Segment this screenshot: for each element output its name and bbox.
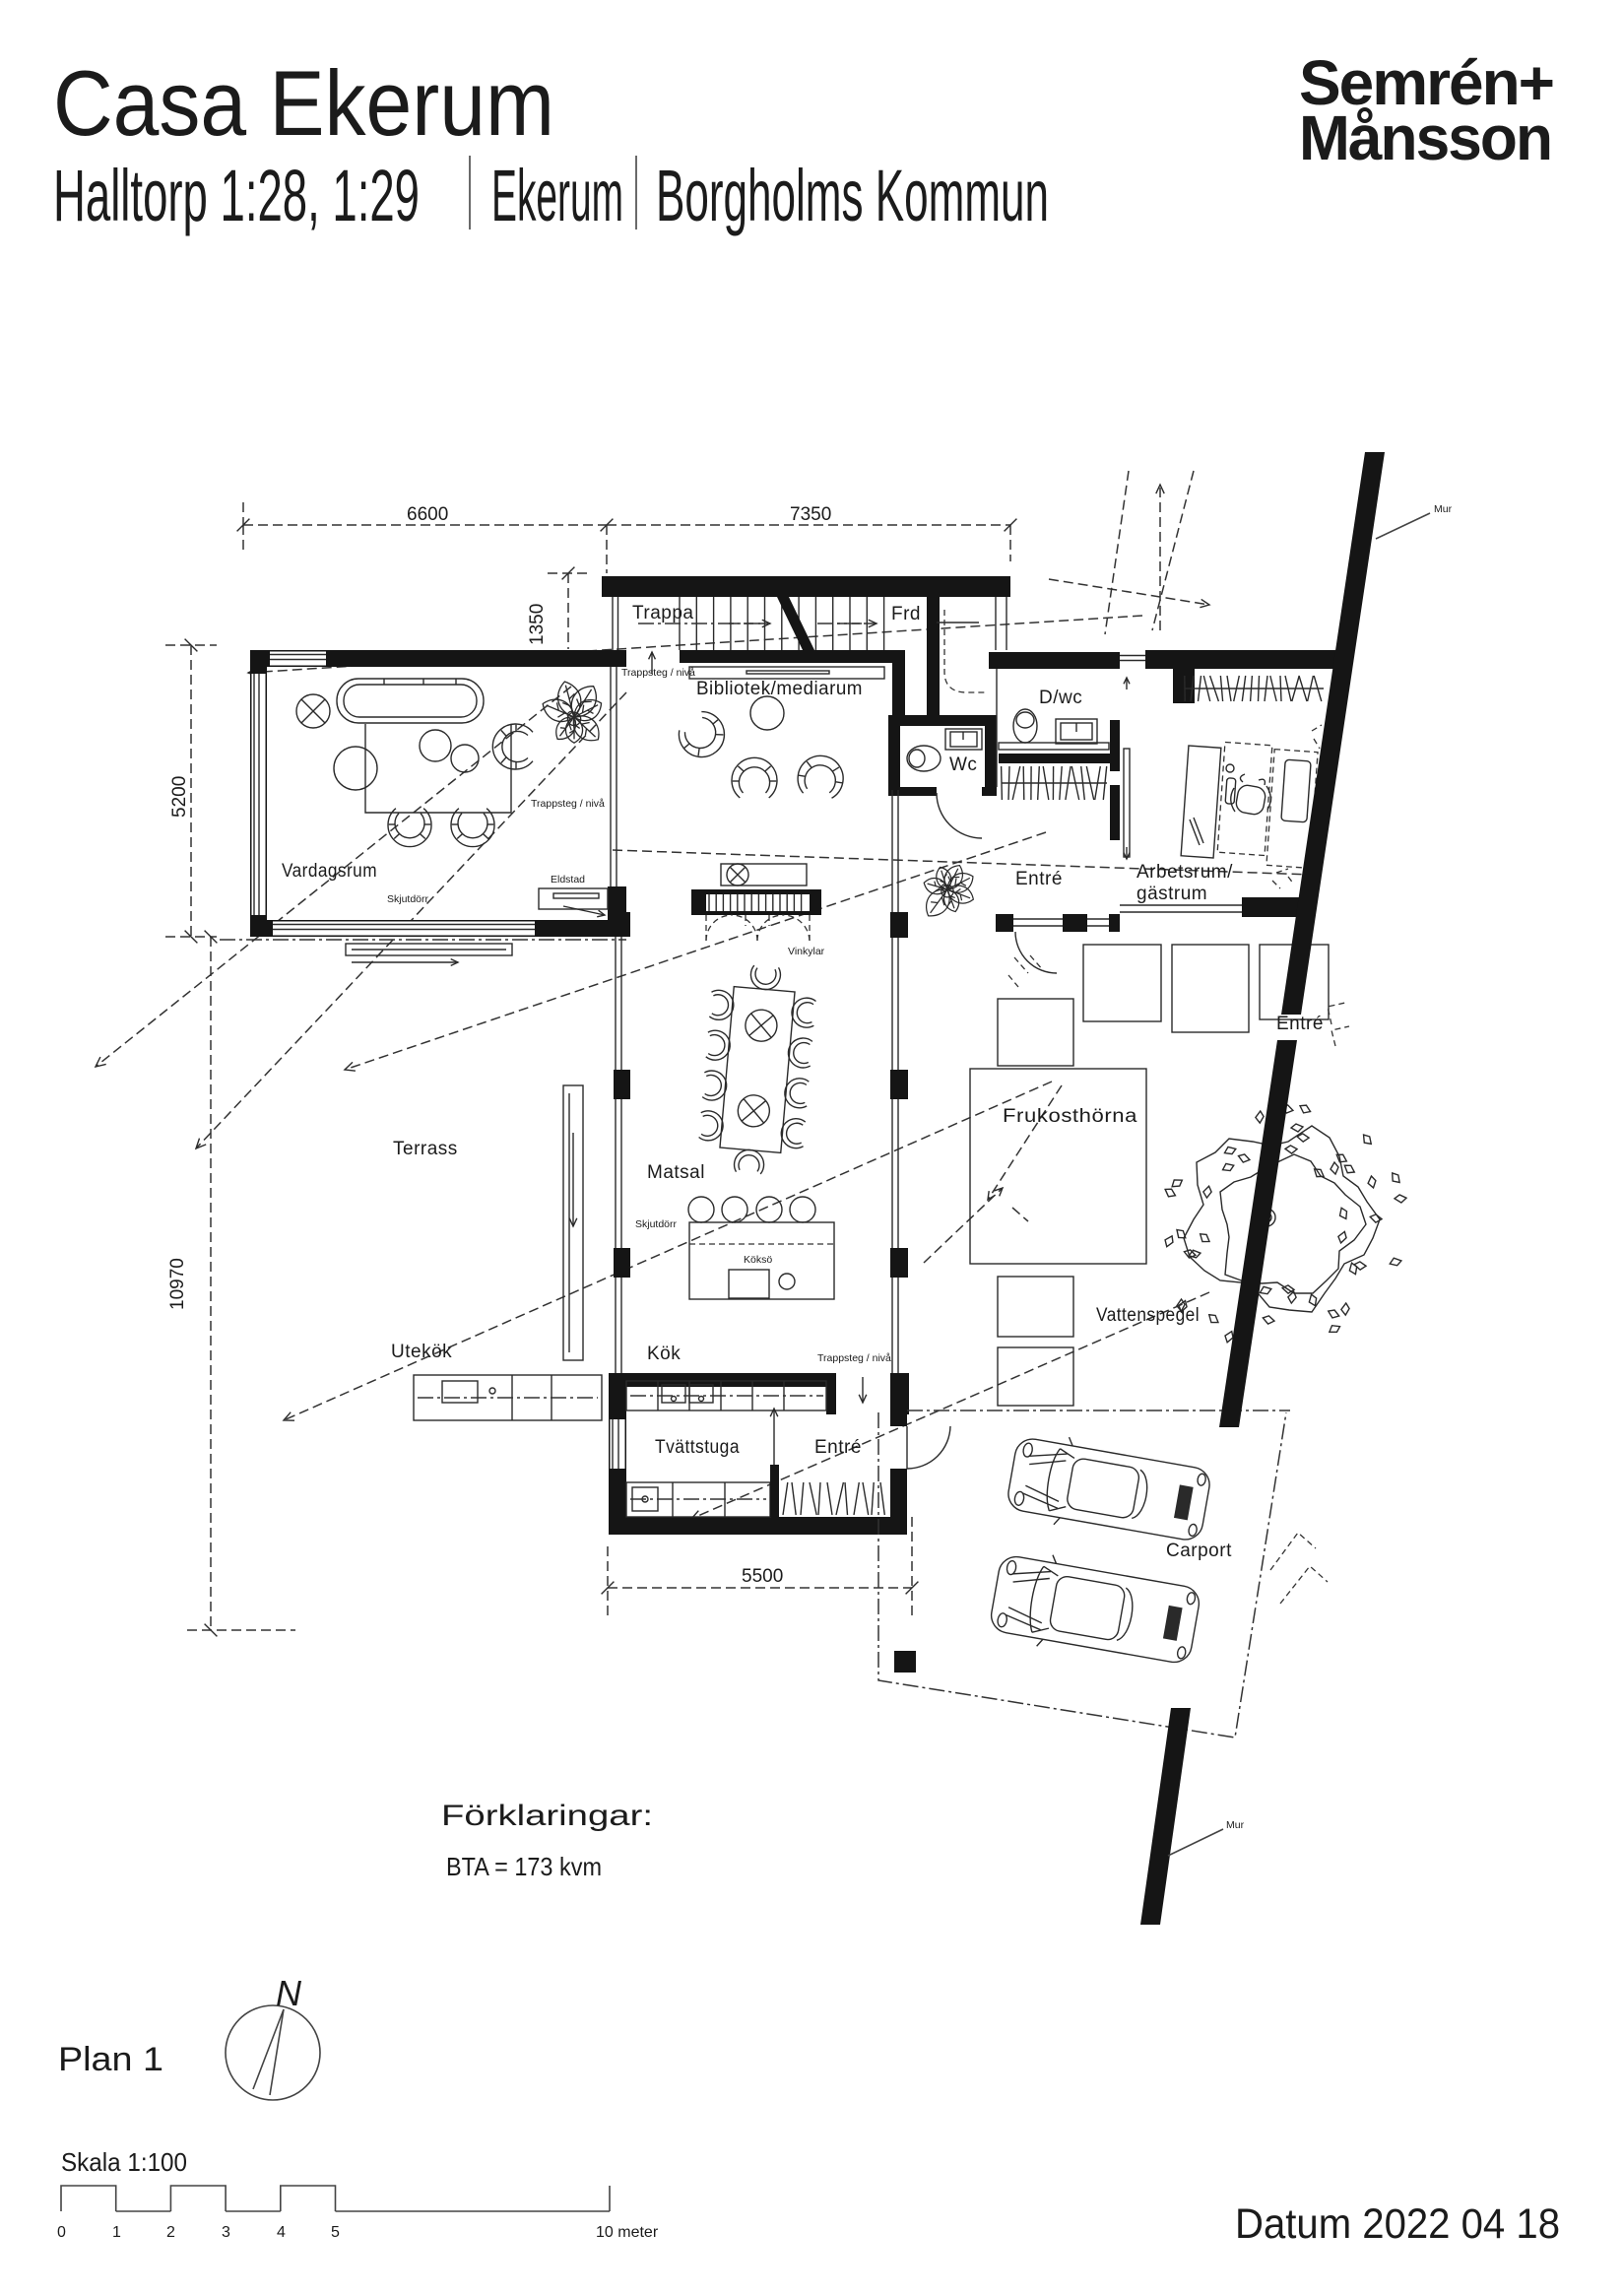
svg-text:Tvättstuga: Tvättstuga (655, 1437, 740, 1458)
svg-text:Datum 2022 04 18: Datum 2022 04 18 (1235, 2200, 1560, 2248)
svg-text:Eldstad: Eldstad (551, 874, 585, 886)
svg-text:5: 5 (331, 2224, 340, 2241)
svg-text:Kök: Kök (647, 1344, 681, 1364)
svg-text:D/wc: D/wc (1039, 688, 1082, 708)
svg-text:Entré: Entré (1015, 869, 1063, 889)
svg-text:7350: 7350 (790, 504, 831, 525)
svg-text:3: 3 (222, 2224, 230, 2241)
svg-text:Mur: Mur (1434, 503, 1453, 515)
svg-text:1: 1 (112, 2224, 121, 2241)
svg-text:Halltorp 1:28, 1:29: Halltorp 1:28, 1:29 (53, 155, 420, 236)
svg-text:1350: 1350 (527, 604, 548, 645)
svg-text:Skjutdörr: Skjutdörr (387, 893, 429, 905)
svg-text:Ekerum: Ekerum (491, 155, 623, 236)
svg-text:5500: 5500 (742, 1566, 783, 1587)
svg-text:Trappsteg / nivå: Trappsteg / nivå (817, 1352, 891, 1364)
svg-text:5200: 5200 (169, 776, 190, 818)
svg-text:Vardagsrum: Vardagsrum (282, 861, 377, 882)
svg-text:Casa Ekerum: Casa Ekerum (53, 51, 554, 155)
svg-text:Plan 1: Plan 1 (58, 2041, 163, 2078)
svg-text:10 meter: 10 meter (596, 2224, 659, 2241)
svg-text:Mur: Mur (1226, 1819, 1245, 1831)
svg-text:Entré: Entré (1276, 1014, 1324, 1034)
svg-text:Månsson: Månsson (1299, 102, 1551, 173)
svg-text:Utekök: Utekök (391, 1342, 452, 1362)
svg-text:Vinkylar: Vinkylar (788, 946, 825, 957)
svg-text:Borgholms Kommun: Borgholms Kommun (656, 155, 1049, 236)
svg-text:Skala 1:100: Skala 1:100 (61, 2147, 187, 2177)
svg-text:Bibliotek/mediarum: Bibliotek/mediarum (696, 679, 863, 699)
svg-text:Frukosthörna: Frukosthörna (1003, 1106, 1137, 1127)
svg-text:0: 0 (57, 2224, 66, 2241)
svg-text:6600: 6600 (407, 504, 448, 525)
svg-text:Arbetsrum/: Arbetsrum/ (1136, 862, 1233, 883)
svg-text:Förklaringar:: Förklaringar: (441, 1800, 653, 1832)
svg-text:Skjutdörr: Skjutdörr (635, 1218, 678, 1230)
svg-text:Trappsteg / nivå: Trappsteg / nivå (621, 667, 695, 679)
svg-text:4: 4 (277, 2224, 286, 2241)
svg-text:Köksö: Köksö (744, 1254, 772, 1266)
svg-text:BTA = 173 kvm: BTA = 173 kvm (446, 1852, 602, 1881)
svg-text:N: N (276, 1973, 302, 2013)
svg-text:Terrass: Terrass (393, 1139, 458, 1159)
svg-text:Entré: Entré (814, 1437, 862, 1458)
svg-text:2: 2 (166, 2224, 175, 2241)
svg-text:Trappsteg / nivå: Trappsteg / nivå (531, 798, 605, 810)
svg-text:Vattenspegel: Vattenspegel (1096, 1305, 1200, 1326)
svg-text:Frd: Frd (891, 604, 921, 624)
svg-text:Carport: Carport (1166, 1541, 1232, 1561)
svg-text:Matsal: Matsal (647, 1162, 705, 1183)
svg-text:gästrum: gästrum (1136, 884, 1207, 904)
svg-text:Wc: Wc (949, 754, 977, 775)
svg-text:Trappa: Trappa (632, 603, 694, 623)
svg-text:10970: 10970 (167, 1258, 188, 1310)
